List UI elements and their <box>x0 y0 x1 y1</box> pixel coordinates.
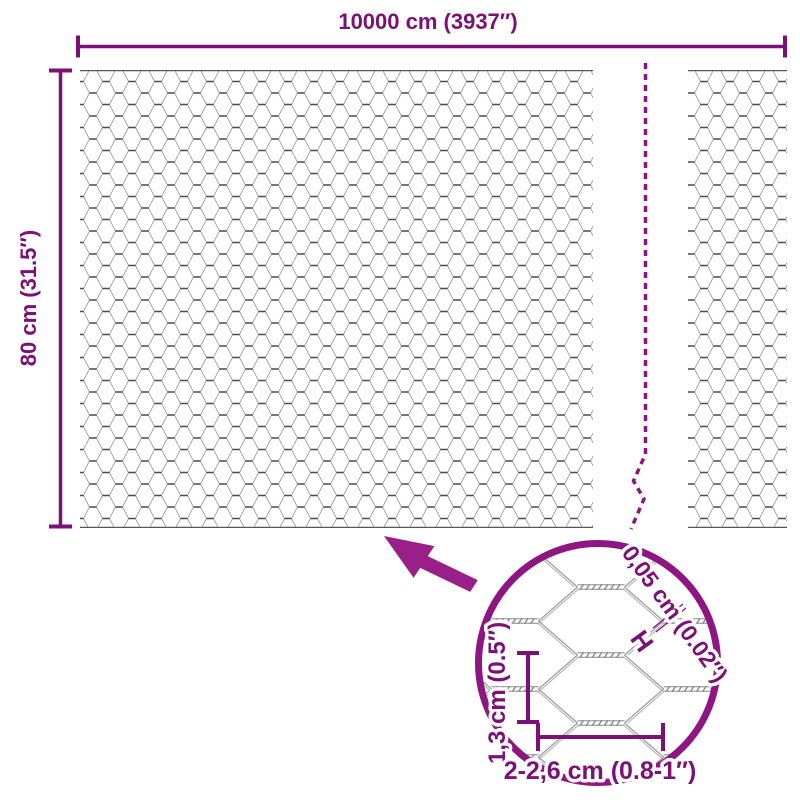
diagram-canvas: 10000 cm (3937″) 80 cm (31.5″) 0,05 cm (… <box>0 0 800 800</box>
length-break-dashed-line <box>631 63 646 529</box>
mesh-height-label: 1,3 cm (0.5″) <box>484 622 511 764</box>
left-height-label: 80 cm (31.5″) <box>16 230 41 367</box>
product-dimension-diagram: 10000 cm (3937″) 80 cm (31.5″) 0,05 cm (… <box>0 0 800 800</box>
pointer-arrow-icon <box>384 536 478 592</box>
mesh-panel-right <box>688 70 787 528</box>
left-height-dimension <box>49 70 72 527</box>
mesh-panel-left <box>80 70 593 528</box>
mesh-width-label: 2-2,6 cm (0.8-1″) <box>504 757 697 785</box>
top-width-label: 10000 cm (3937″) <box>338 9 517 34</box>
top-width-dimension <box>76 36 787 58</box>
